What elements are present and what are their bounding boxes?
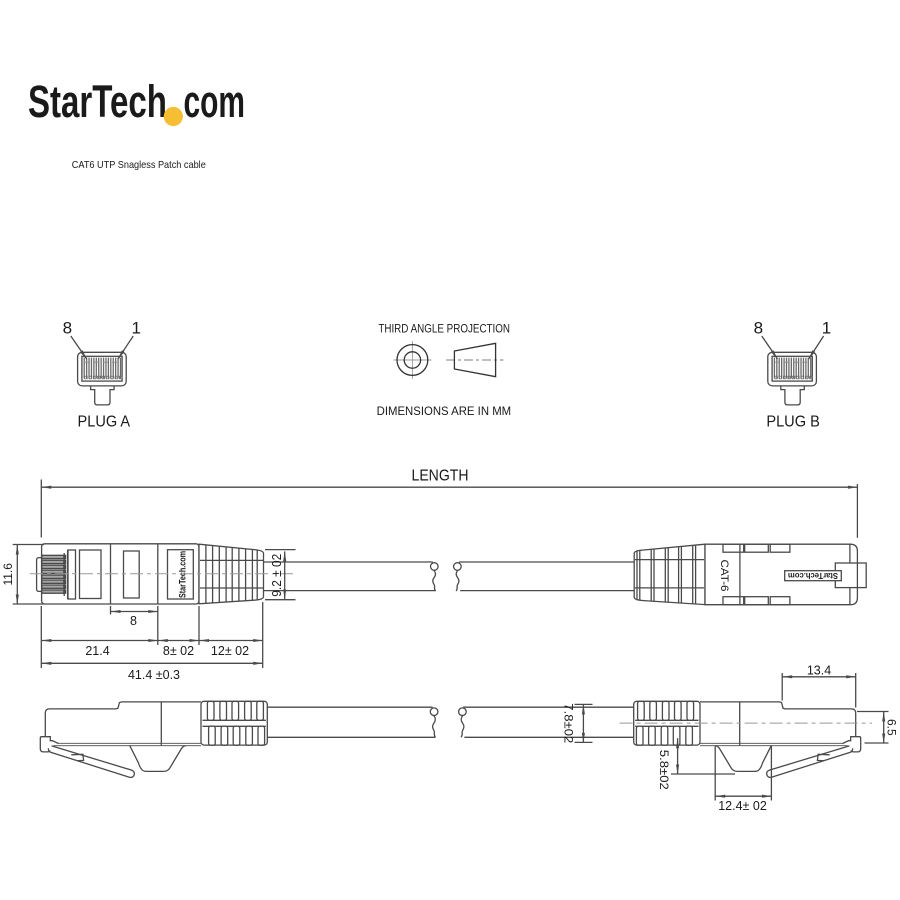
svg-text:41.4 ±0.3: 41.4 ±0.3 [128,668,180,682]
svg-text:CAT6 UTP Snagless Patch cable: CAT6 UTP Snagless Patch cable [72,160,206,171]
svg-text:THIRD ANGLE PROJECTION: THIRD ANGLE PROJECTION [378,323,510,335]
svg-text:8± 02: 8± 02 [163,644,194,658]
svg-text:LENGTH: LENGTH [412,468,469,485]
svg-text:DIMENSIONS ARE IN MM: DIMENSIONS ARE IN MM [377,406,512,418]
svg-text:11.6: 11.6 [1,563,15,586]
svg-text:12± 02: 12± 02 [211,644,249,658]
svg-text:12.4± 02: 12.4± 02 [718,799,767,813]
svg-text:PLUG A: PLUG A [78,414,131,431]
svg-text:StarTech: StarTech [28,76,167,127]
svg-text:13.4: 13.4 [807,664,831,678]
svg-text:8: 8 [63,319,72,338]
svg-text:21.4: 21.4 [85,644,109,658]
svg-text:5.8±02: 5.8±02 [657,750,671,790]
svg-text:1: 1 [131,319,140,338]
svg-text:StarTech.com: StarTech.com [788,571,838,580]
svg-text:8: 8 [754,319,763,338]
svg-text:6.5: 6.5 [885,719,899,736]
svg-text:7.8±02: 7.8±02 [562,703,576,743]
svg-text:PLUG B: PLUG B [766,414,820,431]
svg-text:1: 1 [822,319,831,338]
svg-text:com: com [184,76,246,127]
svg-text:9.2 ± 02: 9.2 ± 02 [270,554,284,597]
svg-text:CAT-6: CAT-6 [718,560,730,592]
svg-text:StarTech.com: StarTech.com [178,551,188,598]
svg-text:8: 8 [130,614,137,628]
